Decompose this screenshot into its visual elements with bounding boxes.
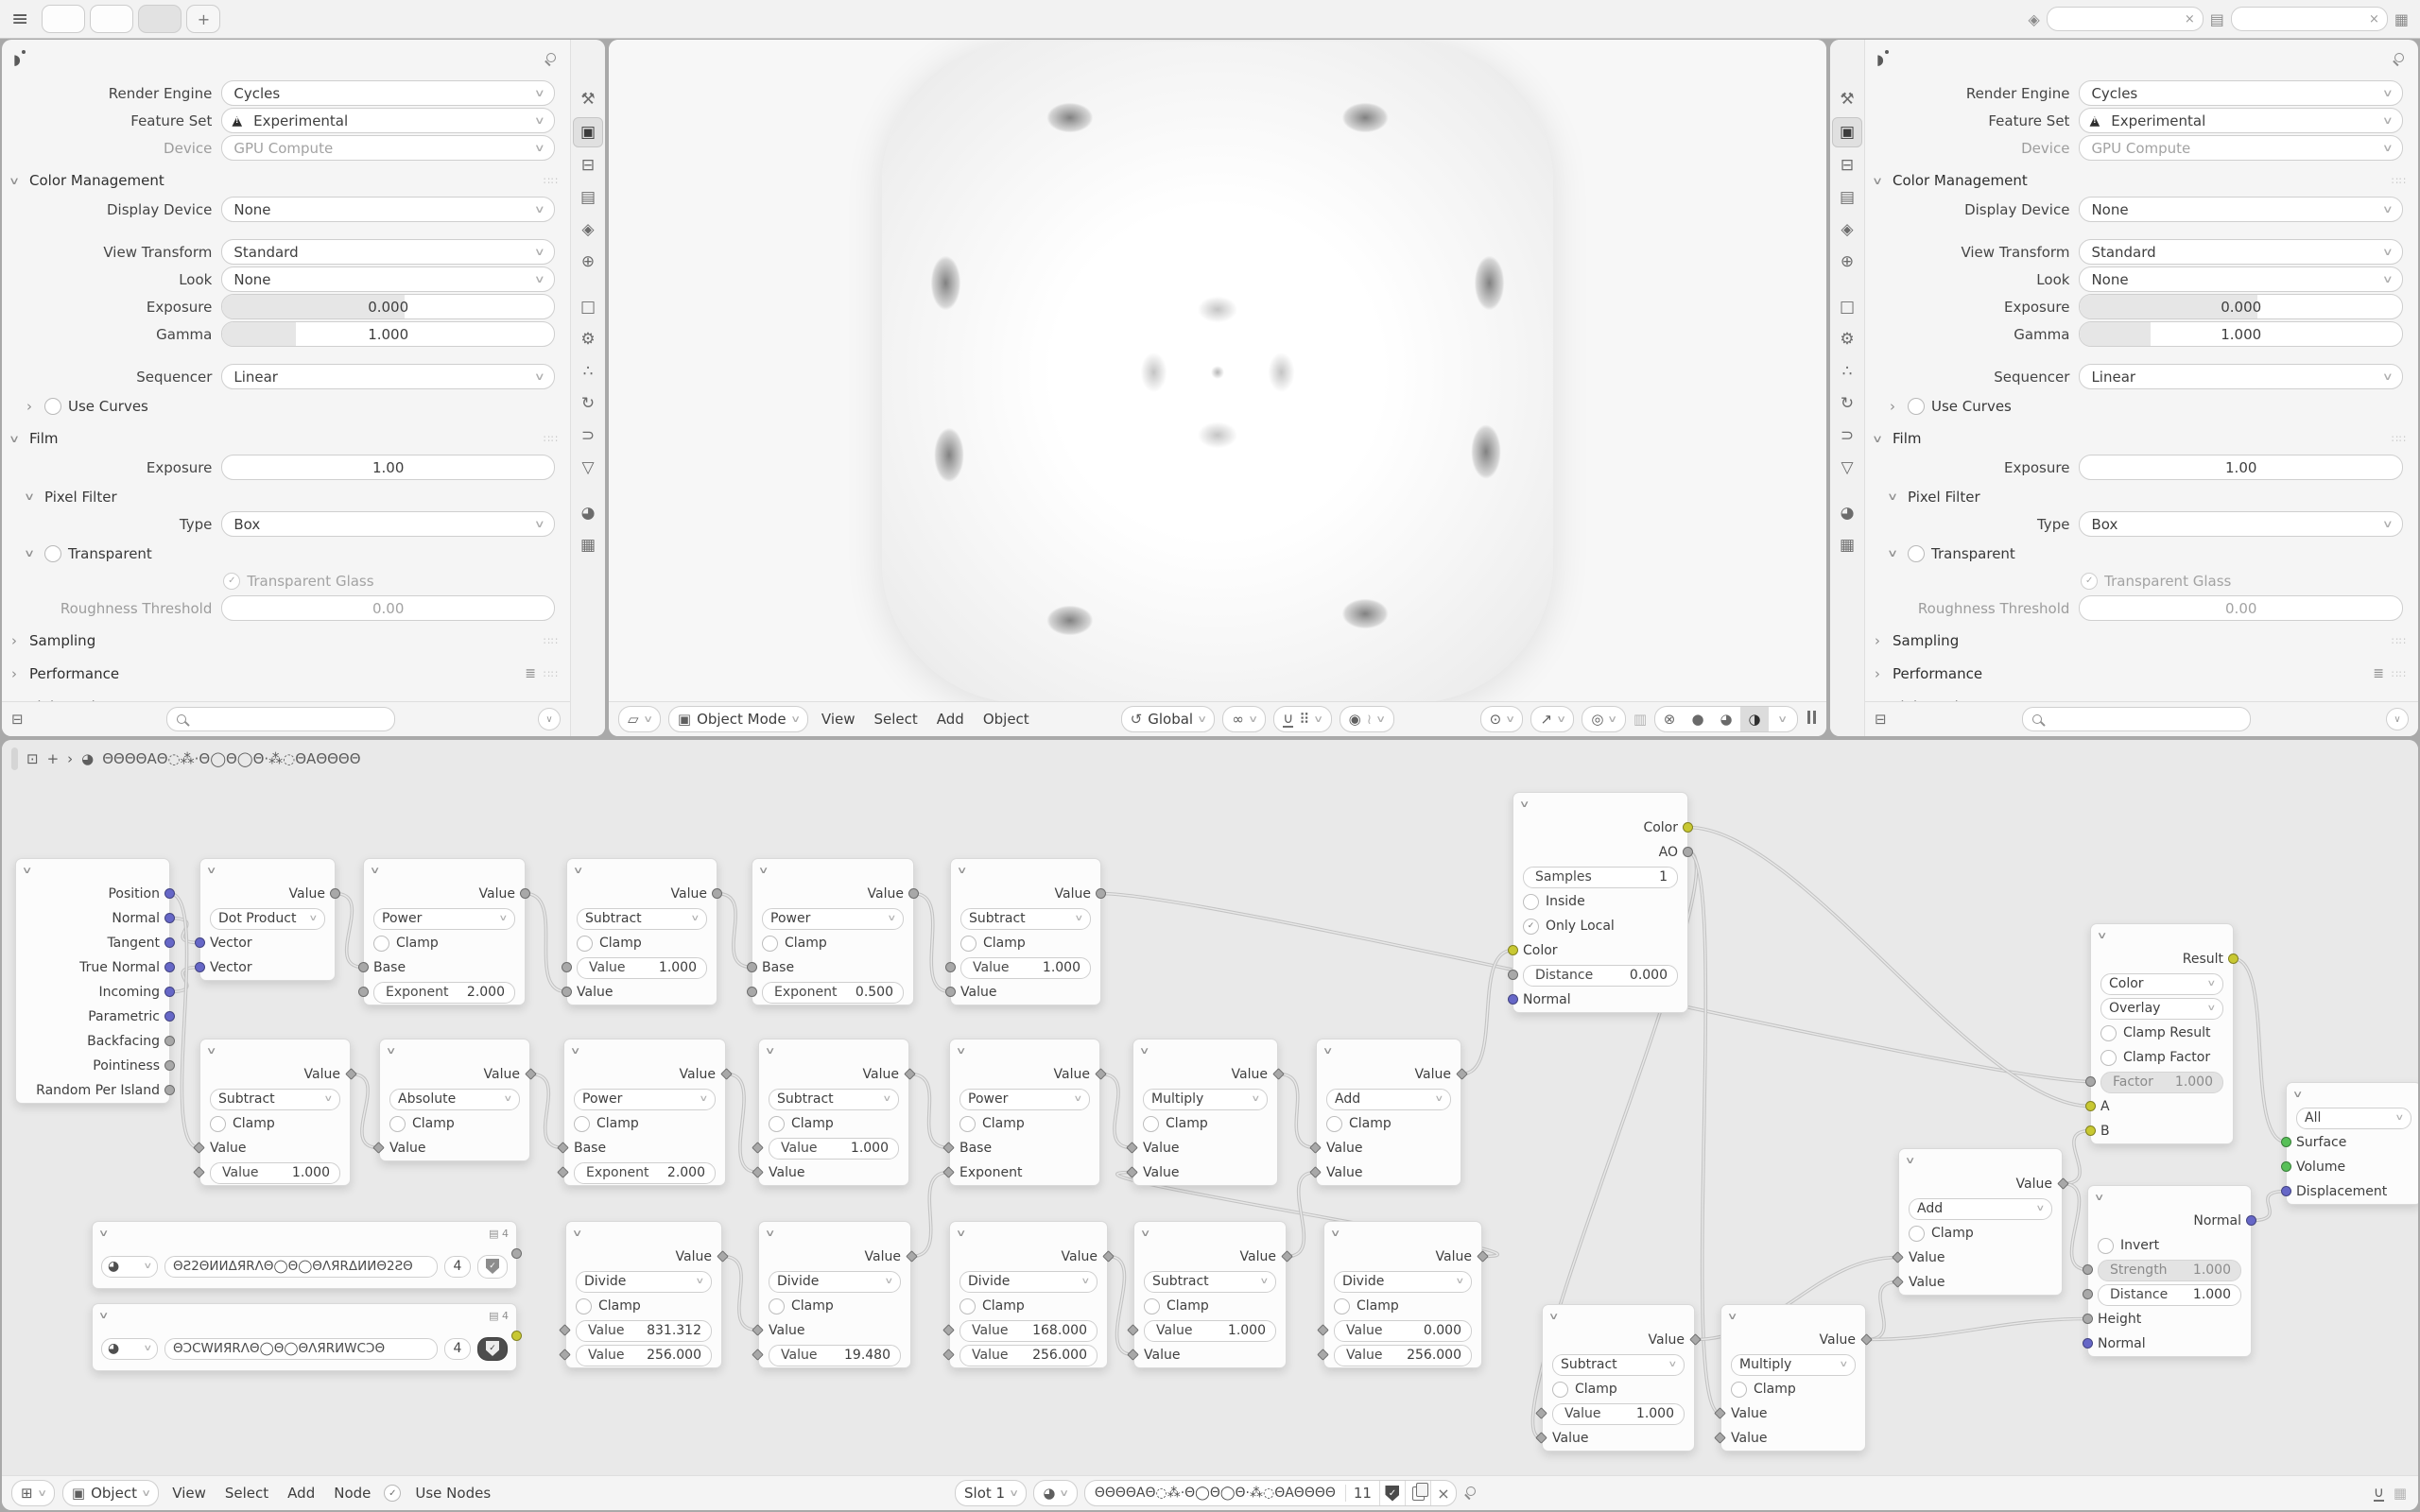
field-render-engine[interactable]: Cycles∨ [221, 80, 555, 106]
search-input[interactable] [2022, 707, 2251, 731]
shading-dropdown[interactable]: ∨ [1769, 707, 1797, 731]
node-header[interactable]: ∨ [1317, 1039, 1461, 1062]
field-type[interactable]: Box∨ [221, 511, 555, 537]
checkbox[interactable] [389, 1116, 406, 1132]
node-operation-dropdown[interactable]: Subtract∨ [210, 1089, 340, 1110]
node-header[interactable]: ∨▤ 4 [93, 1222, 516, 1245]
socket[interactable] [2083, 1314, 2093, 1324]
socket[interactable] [1127, 1324, 1139, 1336]
collapse-icon[interactable]: ∨ [22, 866, 33, 876]
subsection-use-curves[interactable]: ›Use Curves [1865, 394, 2418, 418]
image-browse-dropdown[interactable]: ◕∨ [101, 1256, 158, 1278]
pause-render-button[interactable] [1806, 711, 1817, 728]
node-a1[interactable]: ∨ValueAdd∨ClampValueValue [1316, 1039, 1461, 1186]
socket[interactable] [1683, 822, 1693, 833]
node-m1[interactable]: ∨ValueMultiply∨ClampValueValue [1132, 1039, 1278, 1186]
view-layer-selector[interactable]: × [2231, 7, 2388, 31]
section-performance[interactable]: ›Performance≣∷∷ [2, 661, 570, 686]
field-view-transform[interactable]: Standard∨ [2079, 239, 2403, 265]
editor-type-icon[interactable]: ⊟ [11, 711, 24, 728]
socket[interactable] [747, 962, 757, 972]
node-header[interactable]: ∨ [1721, 1305, 1865, 1328]
visibility-dropdown[interactable]: ⊙∨ [1480, 706, 1524, 732]
field-roughness-threshold[interactable]: 0.00 [2079, 595, 2403, 621]
collapse-icon[interactable]: ∨ [956, 1046, 967, 1057]
node-s2[interactable]: ∨ValueSubtract∨ClampValue1.000Value [950, 858, 1101, 1005]
tab-modifiers[interactable]: ⚙ [1833, 325, 1861, 353]
socket[interactable] [1317, 1349, 1329, 1361]
material-browse-dropdown[interactable]: ◕∨ [1033, 1480, 1077, 1506]
menu-view[interactable]: View [166, 1485, 212, 1502]
checkbox[interactable] [2100, 1025, 2117, 1041]
node-operation-dropdown[interactable]: Power∨ [574, 1089, 716, 1110]
value-field[interactable]: Value256.000 [1334, 1345, 1472, 1366]
socket[interactable] [2246, 1215, 2256, 1226]
tab-object[interactable]: □ [1833, 293, 1861, 321]
drag-grip-icon[interactable]: ∷∷ [2392, 175, 2407, 187]
checkbox[interactable] [1523, 894, 1539, 910]
unlink-icon[interactable]: × [2185, 12, 2195, 26]
collapse-icon[interactable]: ∨ [1140, 1228, 1151, 1239]
socket[interactable] [358, 962, 369, 972]
node-header[interactable]: ∨ [1133, 1039, 1277, 1062]
tab-material[interactable]: ◕ [1833, 499, 1861, 527]
drag-grip-icon[interactable]: ∷∷ [544, 668, 559, 680]
node-operation-dropdown[interactable]: Color∨ [2100, 973, 2223, 995]
node-p3[interactable]: ∨ValuePower∨ClampBaseExponent2.000 [563, 1039, 726, 1186]
preset-list-icon[interactable]: ≣ [2373, 666, 2384, 681]
field-device[interactable]: GPU Compute∨ [2079, 135, 2403, 161]
value-field[interactable]: Value1.000 [769, 1138, 899, 1160]
unlink-material-icon[interactable]: × [1430, 1481, 1456, 1505]
menu-add[interactable]: Add [282, 1485, 320, 1502]
socket[interactable] [164, 1011, 175, 1022]
collapse-icon[interactable]: ∨ [206, 866, 217, 876]
checkbox[interactable] [576, 1298, 592, 1314]
node-header[interactable]: ∨ [1513, 793, 1687, 816]
checkbox[interactable] [1144, 1298, 1160, 1314]
material-users-count[interactable]: 11 [1345, 1485, 1379, 1502]
node-gi[interactable]: ∨PositionNormalTangentTrue NormalIncomin… [15, 858, 170, 1104]
checkbox[interactable] [44, 545, 61, 562]
node-p4[interactable]: ∨ValuePower∨ClampBaseExponent [949, 1039, 1100, 1186]
node-d3[interactable]: ∨ValueDivide∨ClampValue168.000Value256.0… [949, 1221, 1108, 1368]
collapse-icon[interactable]: ∨ [1905, 1156, 1916, 1166]
value-field[interactable]: Value256.000 [959, 1345, 1098, 1366]
socket[interactable] [906, 1250, 918, 1263]
tab-output[interactable]: ⊟ [1833, 151, 1861, 180]
node-operation-dropdown[interactable]: Multiply∨ [1143, 1089, 1268, 1110]
node-header[interactable]: ∨ [564, 1039, 725, 1062]
collapse-icon[interactable]: ∨ [1548, 1312, 1560, 1322]
shader-type-selector[interactable]: ▣Object∨ [62, 1480, 159, 1506]
value-field[interactable]: Value1.000 [960, 957, 1091, 979]
socket[interactable] [345, 1068, 357, 1080]
value-field[interactable]: Value1.000 [210, 1162, 340, 1184]
menu-object[interactable]: Object [977, 711, 1035, 728]
socket[interactable] [1683, 847, 1693, 857]
node-d4[interactable]: ∨ValueDivide∨ClampValue0.000Value256.000 [1323, 1221, 1482, 1368]
use-nodes-checkbox[interactable] [384, 1485, 401, 1502]
socket[interactable] [2085, 1101, 2096, 1111]
checkbox[interactable] [1909, 1226, 1925, 1242]
socket[interactable] [1860, 1333, 1873, 1346]
transform-orientation[interactable]: ↺Global∨ [1121, 706, 1216, 732]
tab-object-data[interactable]: ▽ [1833, 454, 1861, 482]
checkbox-transparent-glass[interactable] [2081, 573, 2098, 590]
users-count[interactable]: 4 [444, 1338, 471, 1360]
socket[interactable] [942, 1324, 955, 1336]
drag-grip-icon[interactable]: ∷∷ [544, 433, 559, 445]
node-header[interactable]: ∨ [759, 1222, 910, 1245]
node-p2[interactable]: ∨ValuePower∨ClampBaseExponent0.500 [752, 858, 914, 1005]
value-field[interactable]: Distance1.000 [2098, 1284, 2241, 1306]
collapse-icon[interactable]: ∨ [1727, 1312, 1738, 1322]
checkbox[interactable] [769, 1298, 785, 1314]
socket[interactable] [1508, 945, 1518, 955]
image-name-field[interactable]: ΘƧ2ΘИИΔЯRΛΘ◯Θ◯ΘΛЯRΔИИΘ2ƧΘ [164, 1256, 438, 1278]
tab-object-data[interactable]: ▽ [574, 454, 602, 482]
field-roughness-threshold[interactable]: 0.00 [221, 595, 555, 621]
pin-icon[interactable] [544, 52, 559, 67]
editor-type-icon[interactable]: ⊟ [1875, 711, 1887, 728]
move-tool-icon[interactable]: + [47, 750, 60, 767]
tab-constraints[interactable]: ⊃ [1833, 421, 1861, 450]
tab-texture[interactable]: ▦ [574, 531, 602, 559]
section-film[interactable]: ∨Film∷∷ [1865, 426, 2418, 451]
collapse-icon[interactable]: ∨ [765, 1046, 776, 1057]
preset-list-icon[interactable]: ≣ [525, 666, 536, 681]
socket[interactable] [2057, 1177, 2069, 1190]
socket[interactable] [1127, 1349, 1139, 1361]
fake-user-shield-icon[interactable]: ✓ [1379, 1481, 1405, 1505]
field-render-engine[interactable]: Cycles∨ [2079, 80, 2403, 106]
node-s5[interactable]: ∨ValueSubtract∨ClampValue1.000Value [1133, 1221, 1287, 1368]
field-sequencer[interactable]: Linear∨ [2079, 364, 2403, 389]
collapse-icon[interactable]: ∨ [572, 1228, 583, 1239]
checkbox[interactable] [574, 1116, 590, 1132]
section-color-management[interactable]: ∨Color Management∷∷ [2, 168, 570, 193]
socket[interactable] [752, 1324, 764, 1336]
menu-select[interactable]: Select [219, 1485, 274, 1502]
node-operation-dropdown[interactable]: Add∨ [1909, 1198, 2052, 1220]
tab-output[interactable]: ⊟ [574, 151, 602, 180]
node-header[interactable]: ∨ [1543, 1305, 1694, 1328]
node-header[interactable]: ∨ [200, 859, 335, 882]
checkbox[interactable] [1908, 398, 1925, 415]
socket[interactable] [195, 962, 205, 972]
socket[interactable] [193, 1142, 205, 1154]
node-bmp[interactable]: ∨NormalInvertStrength1.000Distance1.000H… [2087, 1185, 2252, 1357]
socket[interactable] [1126, 1142, 1138, 1154]
options-chevron-icon[interactable]: ∨ [2386, 708, 2409, 730]
socket[interactable] [942, 1349, 955, 1361]
socket[interactable] [2281, 1137, 2291, 1147]
collapse-icon[interactable]: ∨ [957, 866, 968, 876]
value-field[interactable]: Value1.000 [1144, 1320, 1276, 1342]
proportional-editing[interactable]: ◉≀∨ [1340, 706, 1394, 732]
checkbox[interactable] [960, 936, 977, 952]
socket[interactable] [1535, 1432, 1547, 1444]
collapse-icon[interactable]: ∨ [1330, 1228, 1341, 1239]
mode-selector[interactable]: ▣Object Mode∨ [668, 706, 808, 732]
render-view-icon[interactable]: ▦ [2394, 10, 2409, 28]
socket[interactable] [1892, 1251, 1904, 1263]
render-preview[interactable] [609, 40, 1826, 702]
socket[interactable] [2083, 1264, 2093, 1275]
socket[interactable] [358, 987, 369, 997]
tab-tool[interactable]: ⚒ [1833, 85, 1861, 113]
socket[interactable] [520, 888, 530, 899]
collapse-icon[interactable]: ∨ [2094, 1193, 2105, 1203]
socket[interactable] [2085, 1076, 2096, 1087]
copy-material-icon[interactable] [1405, 1481, 1430, 1505]
value-field[interactable]: Exponent2.000 [373, 982, 515, 1004]
checkbox[interactable] [1552, 1382, 1568, 1398]
tab-render[interactable]: ▣ [573, 117, 603, 147]
tab-particles[interactable]: ∴ [574, 357, 602, 386]
node-header[interactable]: ∨ [759, 1039, 908, 1062]
checkbox[interactable] [959, 1298, 976, 1314]
field-exposure[interactable]: 0.000 [221, 294, 555, 319]
socket[interactable] [1477, 1250, 1489, 1263]
collapse-icon[interactable]: ∨ [98, 1228, 110, 1239]
value-field[interactable]: Value256.000 [576, 1345, 712, 1366]
node-header[interactable]: ∨ [1899, 1149, 2062, 1172]
socket[interactable] [752, 1166, 764, 1178]
editor-type-selector[interactable]: ⊞∨ [11, 1480, 55, 1506]
subsection-use-curves[interactable]: ›Use Curves [2, 394, 570, 418]
tab-material[interactable]: ◕ [574, 499, 602, 527]
node-s1[interactable]: ∨ValueSubtract∨ClampValue1.000Value [566, 858, 717, 1005]
checkbox[interactable] [762, 936, 778, 952]
node-header[interactable]: ∨ [951, 859, 1100, 882]
fake-user-shield-icon[interactable] [477, 1255, 508, 1279]
checkbox[interactable] [1731, 1382, 1747, 1398]
socket[interactable] [1102, 1250, 1115, 1263]
section-performance[interactable]: ›Performance≣∷∷ [1865, 661, 2418, 686]
field-look[interactable]: None∨ [2079, 266, 2403, 292]
field-feature-set[interactable]: ▲!Experimental∨ [2079, 108, 2403, 133]
editor-type-selector[interactable]: ▱∨ [618, 706, 661, 732]
socket[interactable] [164, 888, 175, 899]
field-exposure[interactable]: 0.000 [2079, 294, 2403, 319]
field-view-transform[interactable]: Standard∨ [221, 239, 555, 265]
collapse-icon[interactable]: ∨ [1322, 1046, 1334, 1057]
pin-icon[interactable] [2392, 52, 2407, 67]
socket[interactable] [164, 937, 175, 948]
socket[interactable] [1309, 1166, 1322, 1178]
checkbox[interactable] [769, 1116, 785, 1132]
field-exposure[interactable]: 1.00 [2079, 455, 2403, 480]
socket[interactable] [511, 1331, 522, 1341]
socket[interactable] [717, 1250, 729, 1263]
tab-scene[interactable]: ◈ [574, 215, 602, 244]
node-operation-dropdown[interactable]: Divide∨ [576, 1271, 712, 1293]
menu-node[interactable]: Node [328, 1485, 376, 1502]
options-chevron-icon[interactable]: ∨ [538, 708, 561, 730]
socket[interactable] [2228, 954, 2238, 964]
field-type[interactable]: Box∨ [2079, 511, 2403, 537]
node-header[interactable]: ∨ [950, 1222, 1107, 1245]
socket[interactable] [1689, 1333, 1702, 1346]
socket[interactable] [195, 937, 205, 948]
socket[interactable] [1714, 1407, 1726, 1419]
value-field[interactable]: Strength1.000 [2098, 1260, 2241, 1281]
field-sequencer[interactable]: Linear∨ [221, 364, 555, 389]
scene-selector[interactable]: × [2047, 7, 2204, 31]
material-name[interactable]: ΘΘΘΘAΘ◌⁂·Θ◯Θ◯Θ·⁂◌ΘAΘΘΘΘ [1085, 1486, 1345, 1501]
tab-modifiers[interactable]: ⚙ [574, 325, 602, 353]
socket[interactable] [904, 1068, 916, 1080]
collapse-icon[interactable]: ∨ [386, 1046, 397, 1057]
socket[interactable] [559, 1349, 571, 1361]
node-operation-dropdown[interactable]: Divide∨ [1334, 1271, 1472, 1293]
material-slot-selector[interactable]: Slot 1∨ [955, 1480, 1027, 1506]
socket[interactable] [1508, 970, 1518, 980]
node-operation-dropdown[interactable]: Divide∨ [959, 1271, 1098, 1293]
collapse-icon[interactable]: ∨ [1139, 1046, 1150, 1057]
fake-user-shield-icon[interactable] [477, 1337, 508, 1361]
node-a2[interactable]: ∨ValueAdd∨ClampValueValue [1898, 1148, 2063, 1296]
checkbox[interactable] [2100, 1050, 2117, 1066]
node-operation-dropdown[interactable]: Overlay∨ [2100, 998, 2223, 1020]
socket[interactable] [525, 1068, 537, 1080]
node-ia[interactable]: ∨▤ 4◕∨ΘƧ2ΘИИΔЯRΛΘ◯Θ◯ΘΛЯRΔИИΘ2ƧΘ4 [92, 1221, 517, 1289]
node-operation-dropdown[interactable]: Power∨ [959, 1089, 1090, 1110]
node-ab[interactable]: ∨ValueAbsolute∨ClampValue [379, 1039, 530, 1161]
collapse-icon[interactable]: ∨ [1519, 799, 1530, 810]
field-display-device[interactable]: None∨ [221, 197, 555, 222]
section-color-management[interactable]: ∨Color Management∷∷ [1865, 168, 2418, 193]
socket[interactable] [1892, 1276, 1904, 1288]
node-ao[interactable]: ∨ColorAOSamples1Inside✓Only LocalColorDi… [1512, 792, 1688, 1013]
socket[interactable] [1317, 1324, 1329, 1336]
socket[interactable] [1281, 1250, 1293, 1263]
socket[interactable] [2281, 1161, 2291, 1172]
workspace-tab-3-active[interactable] [138, 5, 181, 33]
shading-material-button[interactable]: ◕ [1712, 707, 1740, 731]
checkbox[interactable] [373, 936, 389, 952]
node-header[interactable]: ∨ [200, 1039, 350, 1062]
node-graph-canvas[interactable]: ∨PositionNormalTangentTrue NormalIncomin… [2, 740, 2418, 1476]
node-operation-dropdown[interactable]: Subtract∨ [577, 908, 707, 930]
socket[interactable] [1508, 994, 1518, 1005]
node-header[interactable]: ∨ [380, 1039, 529, 1062]
search-input[interactable] [166, 707, 395, 731]
socket[interactable] [1714, 1432, 1726, 1444]
checkbox[interactable]: ✓ [1523, 919, 1539, 935]
socket[interactable] [2083, 1289, 2093, 1299]
collapse-icon[interactable]: ∨ [2097, 931, 2108, 941]
field-look[interactable]: None∨ [221, 266, 555, 292]
properties-editor-icon[interactable]: ◗ [13, 51, 21, 68]
socket[interactable] [511, 1248, 522, 1259]
material-name-field[interactable]: ΘΘΘΘAΘ◌⁂·Θ◯Θ◯Θ·⁂◌ΘAΘΘΘΘ 11 ✓ × [1084, 1480, 1457, 1506]
node-header[interactable]: ∨ [1134, 1222, 1286, 1245]
section-sampling[interactable]: ›Sampling∷∷ [2, 628, 570, 653]
node-header[interactable]: ∨ [2091, 924, 2233, 947]
value-field[interactable]: Exponent0.500 [762, 982, 904, 1004]
node-header[interactable]: ∨ [950, 1039, 1099, 1062]
node-header[interactable]: ∨ [16, 859, 169, 882]
checkbox[interactable] [1334, 1298, 1350, 1314]
collapse-icon[interactable]: ∨ [570, 1046, 581, 1057]
tab-object[interactable]: □ [574, 293, 602, 321]
collapse-icon[interactable]: ∨ [758, 866, 769, 876]
collapse-icon[interactable]: ∨ [956, 1228, 967, 1239]
drag-grip-icon[interactable]: ∷∷ [544, 635, 559, 647]
node-header[interactable]: ∨ [364, 859, 525, 882]
tab-world[interactable]: ⊕ [574, 248, 602, 276]
app-menu-icon[interactable]: ≡ [11, 8, 28, 31]
node-header[interactable]: ∨ [566, 1222, 721, 1245]
checkbox[interactable] [44, 398, 61, 415]
value-field[interactable]: Factor1.000 [2100, 1072, 2223, 1093]
socket[interactable] [1095, 1068, 1107, 1080]
tab-render[interactable]: ▣ [1832, 117, 1862, 147]
workspace-tab-1[interactable] [42, 5, 85, 33]
value-field[interactable]: Value831.312 [576, 1320, 712, 1342]
socket[interactable] [193, 1166, 205, 1178]
properties-editor-icon[interactable]: ◗ [1876, 51, 1884, 68]
tab-world[interactable]: ⊕ [1833, 248, 1861, 276]
tab-particles[interactable]: ∴ [1833, 357, 1861, 386]
node-s3[interactable]: ∨ValueSubtract∨ClampValueValue1.000 [199, 1039, 351, 1186]
node-operation-dropdown[interactable]: Divide∨ [769, 1271, 901, 1293]
socket[interactable] [945, 987, 956, 997]
tab-texture[interactable]: ▦ [1833, 531, 1861, 559]
tab-physics[interactable]: ↻ [1833, 389, 1861, 418]
socket[interactable] [1309, 1142, 1322, 1154]
unlink-icon[interactable]: × [2369, 12, 2379, 26]
node-go[interactable]: ∨All∨SurfaceVolumeDisplacement [2286, 1082, 2418, 1205]
socket[interactable] [942, 1142, 955, 1154]
gizmo-dropdown[interactable]: ↗∨ [1530, 706, 1574, 732]
add-workspace-button[interactable]: + [186, 5, 220, 33]
node-dp[interactable]: ∨ValueDot Product∨VectorVector [199, 858, 336, 981]
socket[interactable] [557, 1142, 569, 1154]
socket[interactable] [164, 1060, 175, 1071]
drag-grip-icon[interactable]: ∷∷ [2392, 635, 2407, 647]
checkbox-transparent-glass[interactable] [223, 573, 240, 590]
checkbox[interactable] [577, 936, 593, 952]
overlay-grid-icon[interactable]: ▦ [2394, 1485, 2407, 1502]
tab-scene[interactable]: ◈ [1833, 215, 1861, 244]
socket[interactable] [2281, 1186, 2291, 1196]
socket[interactable] [720, 1068, 733, 1080]
collapse-icon[interactable]: ∨ [206, 1046, 217, 1057]
socket[interactable] [330, 888, 340, 899]
socket[interactable] [2083, 1338, 2093, 1349]
shading-wireframe-button[interactable]: ⊗ [1655, 707, 1684, 731]
socket[interactable] [562, 962, 572, 972]
users-count[interactable]: 4 [444, 1256, 471, 1278]
pin-icon[interactable] [1463, 1486, 1478, 1501]
socket[interactable] [2085, 1125, 2096, 1136]
value-field[interactable]: Value1.000 [577, 957, 707, 979]
overlays-dropdown[interactable]: ◎∨ [1582, 706, 1625, 732]
snap-target[interactable]: ∞∨ [1222, 706, 1266, 732]
tab-tool[interactable]: ⚒ [574, 85, 602, 113]
node-mix[interactable]: ∨ResultColor∨Overlay∨Clamp ResultClamp F… [2090, 923, 2234, 1144]
socket[interactable] [1272, 1068, 1285, 1080]
socket[interactable] [164, 987, 175, 997]
node-header[interactable]: ∨ [1324, 1222, 1481, 1245]
node-d2[interactable]: ∨ValueDivide∨ClampValueValue19.480 [758, 1221, 911, 1368]
shading-rendered-button[interactable]: ◑ [1740, 707, 1769, 731]
drag-grip-icon[interactable]: ∷∷ [2392, 668, 2407, 680]
